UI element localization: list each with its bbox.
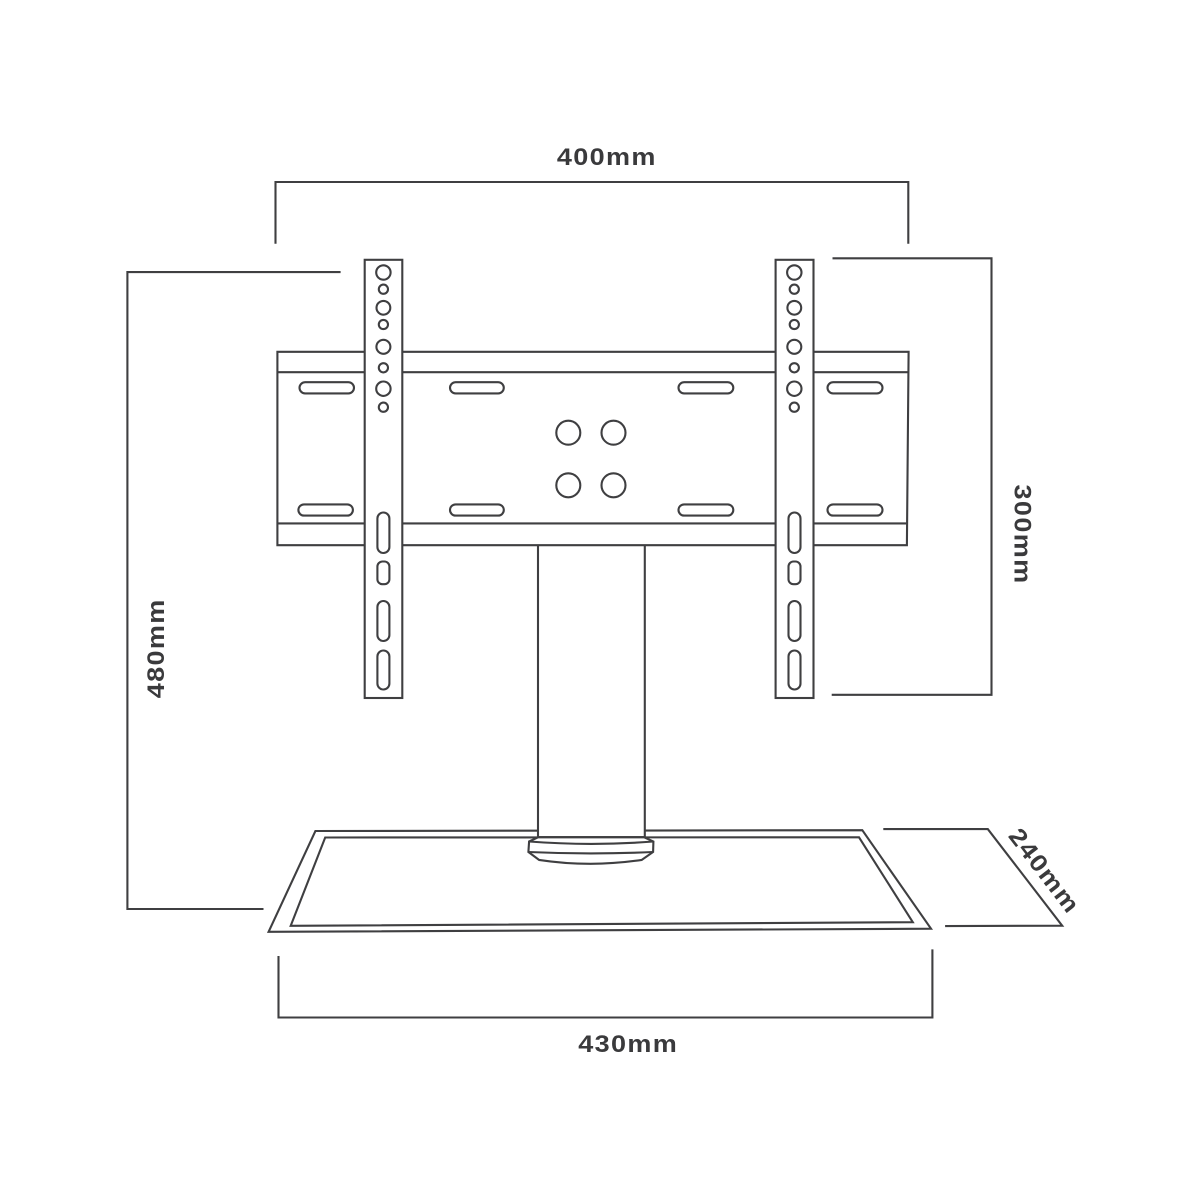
svg-text:300mm: 300mm xyxy=(1009,485,1035,585)
svg-text:400mm: 400mm xyxy=(557,144,657,170)
svg-text:480mm: 480mm xyxy=(143,598,169,698)
svg-text:430mm: 430mm xyxy=(578,1031,678,1057)
